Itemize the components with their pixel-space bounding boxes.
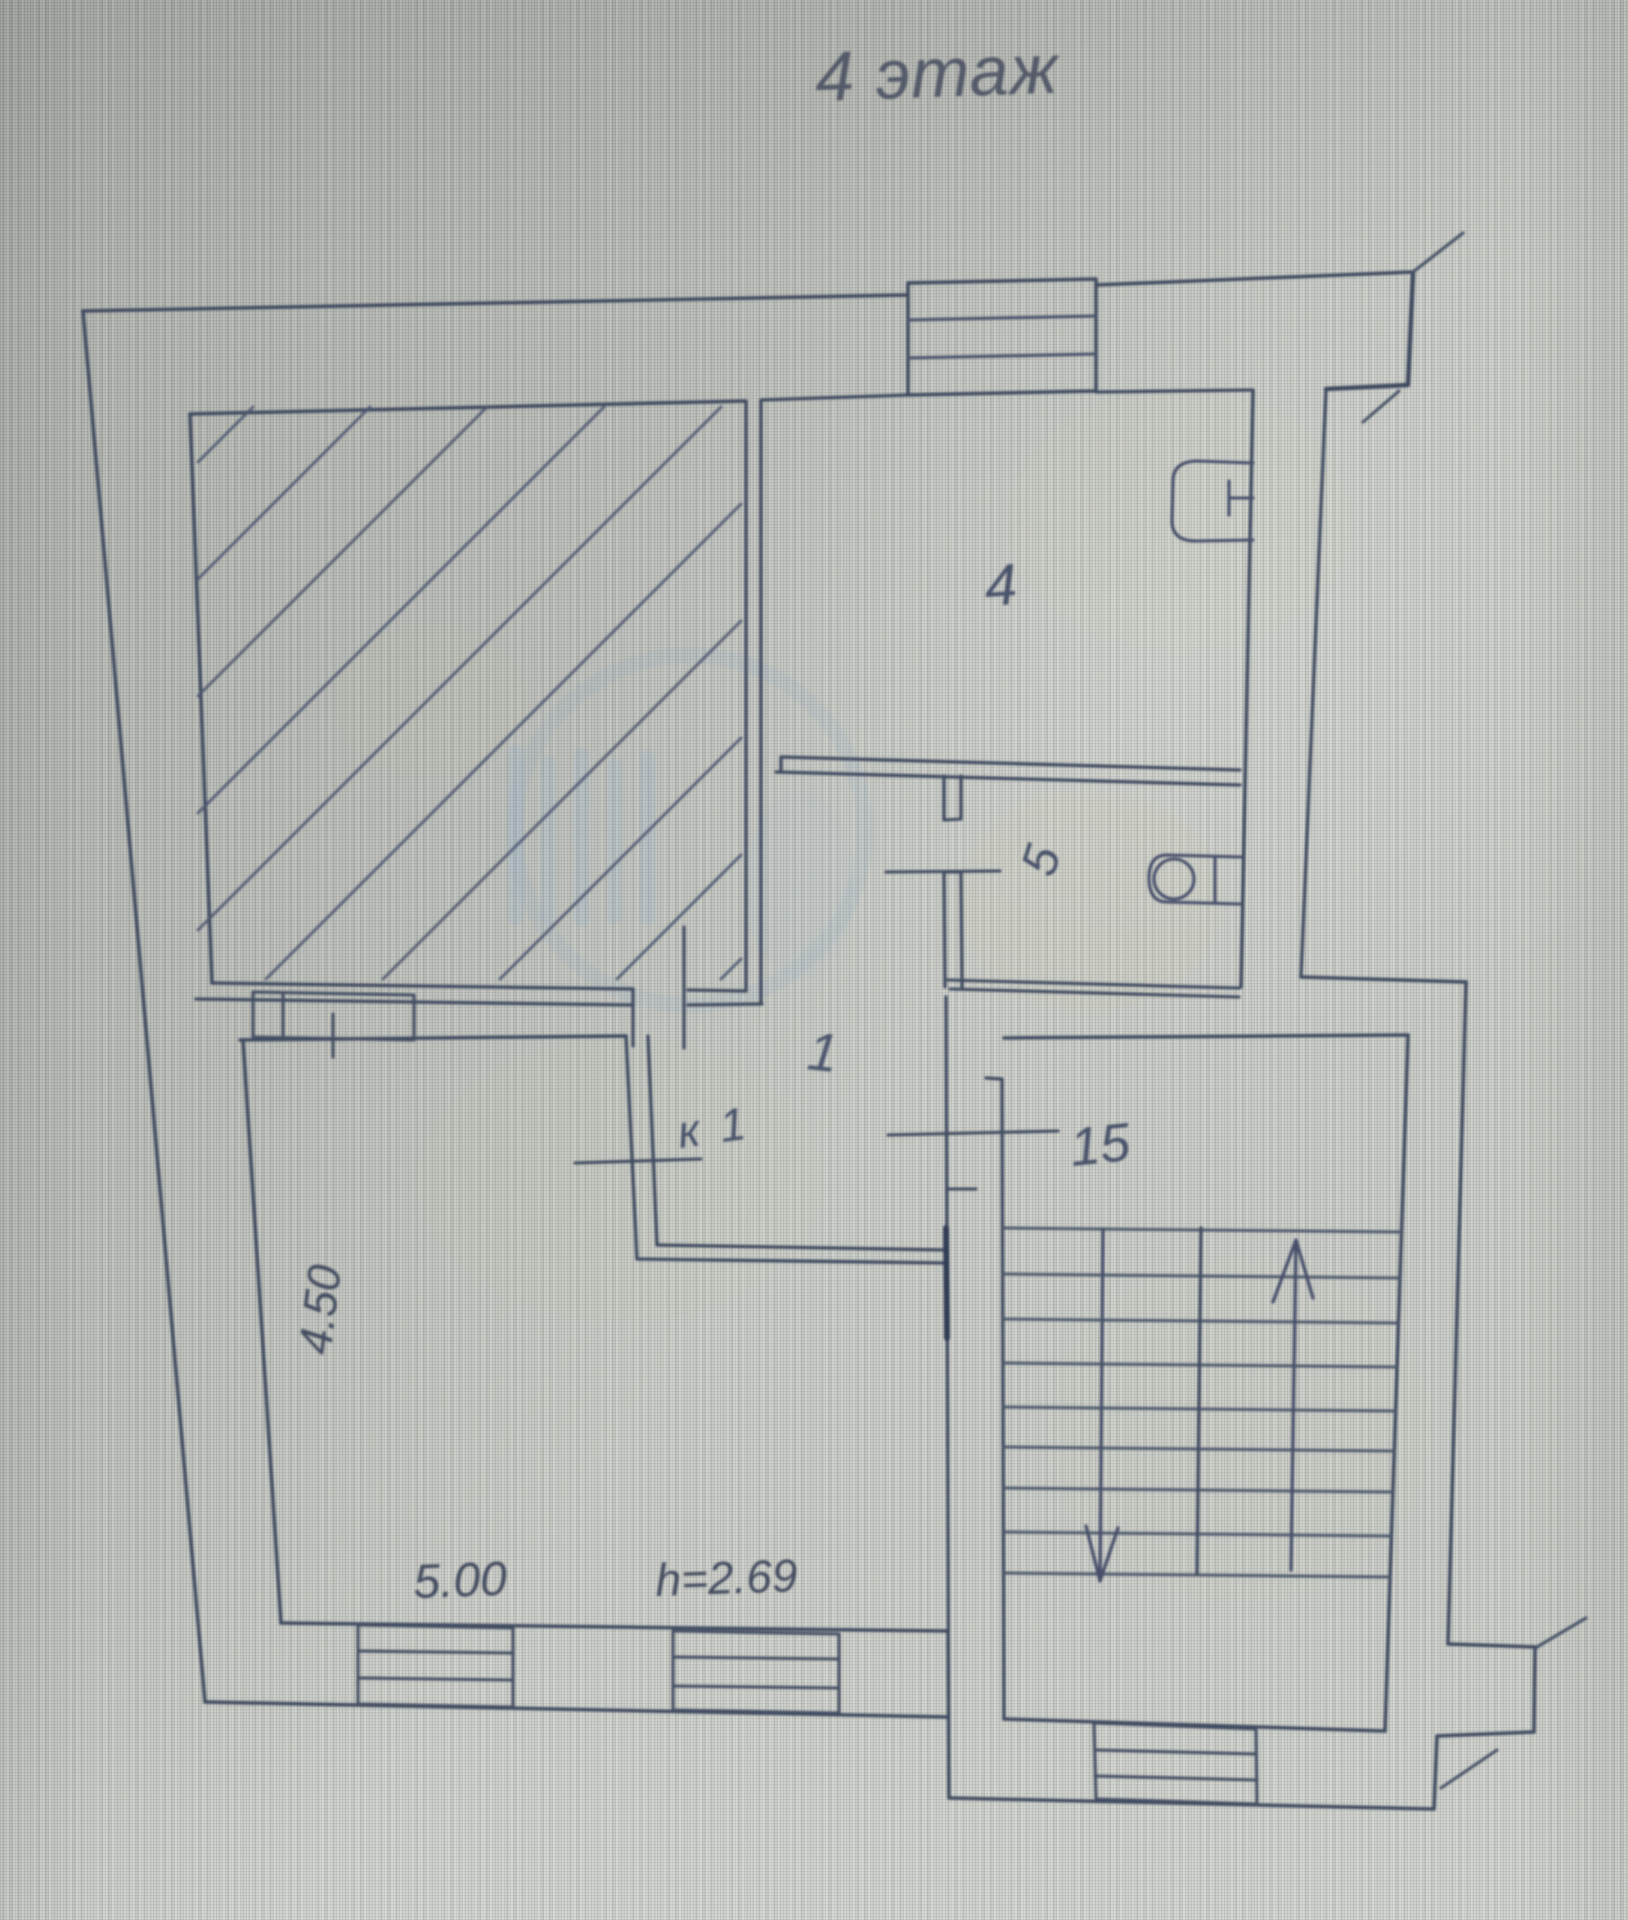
svg-text:4.50: 4.50 [288,1262,351,1358]
svg-text:1: 1 [805,1021,841,1084]
svg-text:к 1: к 1 [674,1096,753,1158]
svg-text:15: 15 [1067,1112,1134,1178]
svg-text:5.00: 5.00 [413,1553,509,1609]
svg-text:4 этаж: 4 этаж [814,29,1062,116]
svg-text:4: 4 [982,552,1019,619]
svg-text:h=2.69: h=2.69 [655,1549,799,1606]
